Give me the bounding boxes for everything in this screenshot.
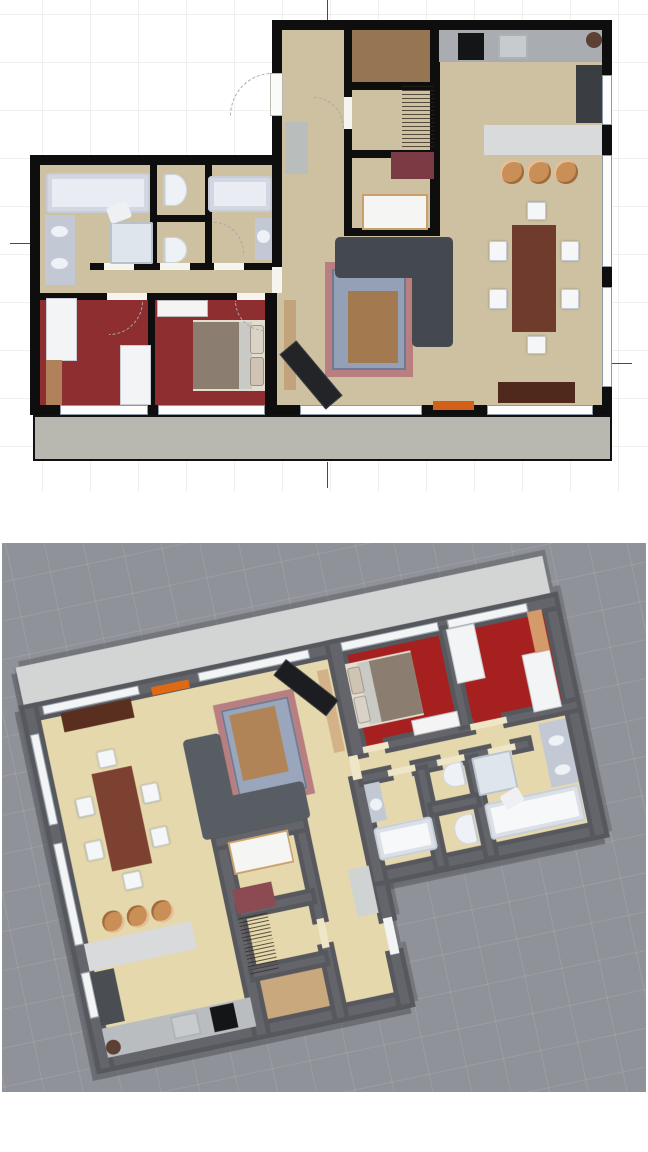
wall-baths-b [134, 263, 160, 270]
living-kitchen-floor [272, 20, 612, 415]
wall-top [272, 20, 612, 30]
plan-2d-viewport[interactable]: 25 sq. ft. [0, 0, 648, 492]
floorplan-app-screen: 25 sq. ft. [0, 0, 648, 1152]
coffee-maker [586, 32, 602, 48]
wall-baths-a [90, 263, 104, 270]
dining-chair-1 [527, 202, 546, 220]
dining-chair-3 [489, 289, 507, 309]
wall-hall-left [272, 155, 282, 267]
threshold-wc [160, 263, 190, 270]
cooktop [210, 1003, 239, 1033]
threshold-closet [344, 97, 352, 129]
threshold-bath1 [104, 263, 134, 270]
stool-3 [554, 160, 578, 184]
orange-mat [433, 401, 474, 410]
single-bed-a [46, 298, 77, 361]
dining-chair-2 [150, 826, 170, 848]
wall-baths-c [190, 263, 214, 270]
wall-entry-upper [272, 20, 282, 75]
wall-entry-lower [272, 115, 282, 155]
dining-chair-4 [561, 241, 579, 261]
sink-oval-2 [51, 258, 68, 269]
wall-hallcol-upper [344, 20, 352, 97]
dining-chair-1 [122, 870, 143, 890]
entry-door-arc [230, 73, 272, 116]
view-3d-viewport[interactable] [2, 543, 646, 1092]
stool-2 [527, 160, 551, 184]
wall-baths-d [244, 263, 272, 270]
double-bed-pillow-2 [250, 357, 264, 386]
dining-chair-3 [140, 782, 160, 804]
tick-left [10, 243, 30, 244]
sink-oval-1 [51, 226, 68, 237]
wall-bedrooms-b [147, 293, 237, 300]
stool-1 [500, 160, 524, 184]
window-right-2 [602, 155, 612, 267]
ottoman-red [391, 152, 434, 179]
kitchen-sink [498, 34, 528, 59]
wall-wing-left [30, 155, 40, 415]
threshold-hallway [272, 267, 282, 293]
single-bed-hall [362, 194, 428, 230]
dining-chair-2 [489, 241, 507, 261]
dining-table [512, 225, 556, 332]
coffee-table [348, 291, 398, 363]
window-living-2 [487, 405, 593, 415]
threshold-bedroom1 [107, 293, 147, 300]
bathtub-1 [46, 173, 150, 213]
threshold-bedroom2 [237, 293, 265, 300]
dresser-wood [46, 360, 62, 405]
sink-round-2 [257, 230, 270, 243]
bathtub-2 [208, 176, 272, 212]
terrace-floor [33, 415, 612, 461]
sofa-side-section [412, 254, 453, 347]
wall-hallcol-lower [344, 129, 352, 236]
dining-chair-4 [84, 840, 104, 862]
tick-bottom [327, 462, 328, 488]
dining-chair-5 [75, 796, 95, 818]
fridge [576, 65, 602, 123]
window-living-1 [300, 405, 422, 415]
dining-chair-6 [527, 336, 546, 354]
tick-right [612, 363, 632, 364]
dining-chair-6 [96, 749, 117, 769]
shower-stall [110, 222, 153, 264]
entry-cabinet [285, 122, 308, 174]
window-bedroom2 [158, 405, 265, 415]
single-bed-b [120, 345, 151, 405]
double-bed-blanket [193, 322, 241, 389]
dresser-white [157, 300, 208, 317]
sideboard [498, 382, 575, 403]
island-counter [484, 125, 602, 155]
window-right-1 [602, 75, 612, 125]
window-bedroom1 [60, 405, 148, 415]
cooktop [458, 33, 484, 60]
building-2d: 25 sq. ft. [30, 8, 612, 462]
threshold-bath2 [214, 263, 244, 270]
wall-bedroom2-living [265, 293, 277, 415]
dining-chair-5 [561, 289, 579, 309]
window-right-3 [602, 287, 612, 387]
tick-top [327, 0, 328, 20]
wardrobe-rail [402, 86, 434, 148]
wall-wc-divider [157, 215, 205, 222]
